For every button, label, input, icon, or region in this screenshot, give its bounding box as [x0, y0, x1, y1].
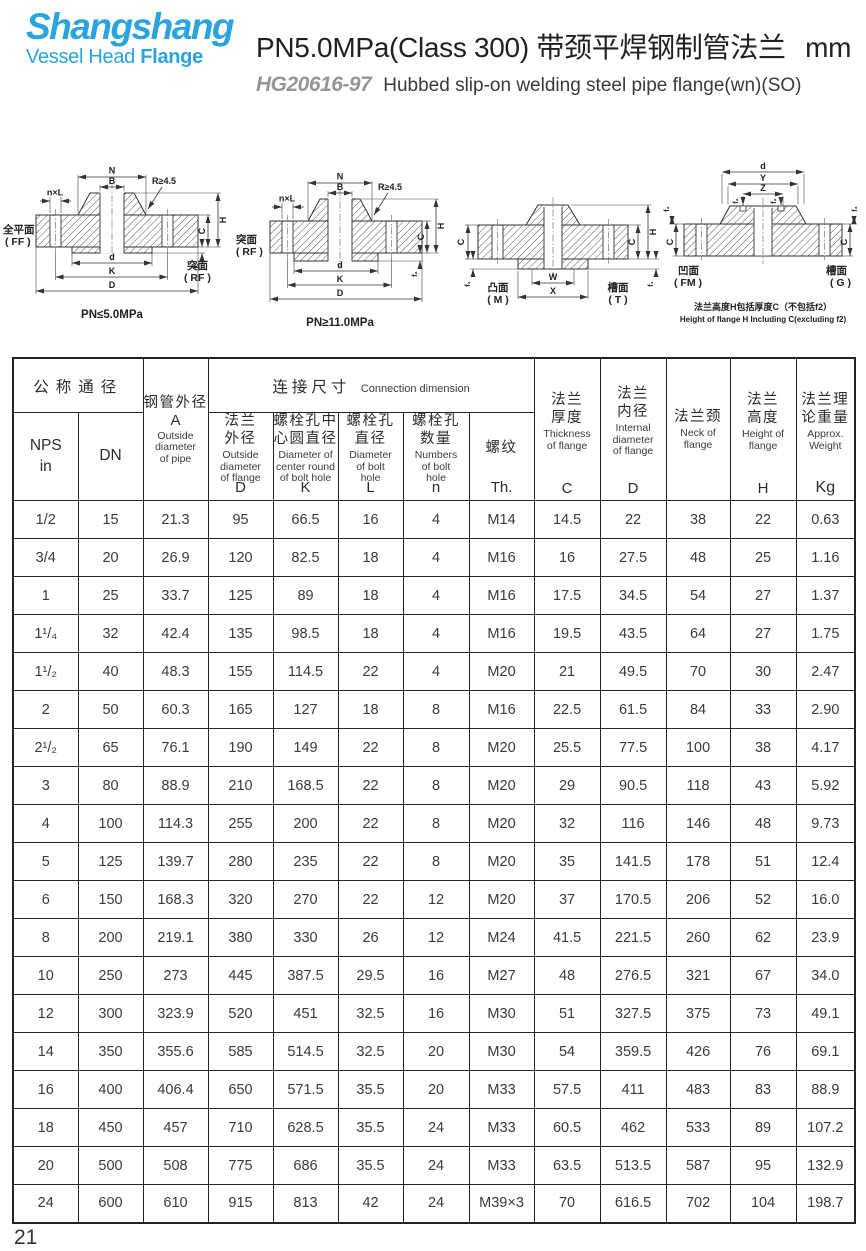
dim-label-h: H: [648, 229, 658, 236]
table-cell: 14.5: [534, 501, 600, 539]
table-cell: 30: [730, 653, 796, 691]
dim-label-r: R≥4.5: [152, 176, 176, 186]
table-cell: 29.5: [338, 957, 403, 995]
table-cell: 24: [403, 1185, 469, 1223]
table-cell: 20: [403, 1033, 469, 1071]
table-cell: 22: [730, 501, 796, 539]
table-cell: 1/2: [13, 501, 78, 539]
table-cell: 585: [208, 1033, 273, 1071]
table-cell: 29: [534, 767, 600, 805]
col-group-connection: 连接尺寸 Connection dimension: [208, 358, 534, 413]
table-cell: M27: [469, 957, 534, 995]
table-cell: 300: [78, 995, 143, 1033]
table-cell: 8: [403, 843, 469, 881]
table-cell: 76: [730, 1033, 796, 1071]
page-number: 21: [14, 1226, 37, 1250]
table-cell: M20: [469, 843, 534, 881]
connection-group-zh: 连接尺寸: [272, 379, 350, 396]
table-cell: 150: [78, 881, 143, 919]
dim-label-c: C: [416, 233, 426, 240]
table-cell: 49.1: [796, 995, 855, 1033]
table-row: 12533.712589184M1617.534.554271.37: [13, 577, 855, 615]
table-cell: 650: [208, 1071, 273, 1109]
table-cell: 132.9: [796, 1147, 855, 1185]
table-cell: M20: [469, 767, 534, 805]
table-cell: 483: [666, 1071, 730, 1109]
table-row: 2¹/₂6576.1190149228M2025.577.5100384.17: [13, 729, 855, 767]
dim-label-w: W: [549, 272, 558, 282]
table-cell: 48: [534, 957, 600, 995]
title-unit: mm: [805, 32, 851, 63]
table-cell: 350: [78, 1033, 143, 1071]
table-cell: 83: [730, 1071, 796, 1109]
table-cell: M33: [469, 1147, 534, 1185]
drawing-flange-fm-g: d Y Z f₂ f₂ f₃ f₃ C C 凹面 ( FM ) 槽面 ( G )…: [664, 152, 862, 332]
face-label-fm-zh: 凹面: [678, 265, 699, 277]
table-cell: 4: [13, 805, 78, 843]
table-cell: 235: [273, 843, 338, 881]
brand-tagline-b: Flange: [140, 46, 203, 68]
table-cell: 100: [666, 729, 730, 767]
table-cell: 616.5: [600, 1185, 666, 1223]
table-cell: 387.5: [273, 957, 338, 995]
drawing-flange-ff-rf: N B n×L R≥4.5 d K D H C f₁ 全平面 ( FF ) 突面…: [2, 147, 236, 333]
table-row: 1¹/₂4048.3155114.5224M202149.570302.47: [13, 653, 855, 691]
table-cell: 67: [730, 957, 796, 995]
table-cell: 219.1: [143, 919, 208, 957]
table-cell: M30: [469, 1033, 534, 1071]
table-cell: 1¹/₂: [13, 653, 78, 691]
table-cell: M20: [469, 881, 534, 919]
col-header-neck: 法兰颈 Neck of flange: [666, 358, 730, 501]
table-cell: 120: [208, 539, 273, 577]
table-cell: 114.3: [143, 805, 208, 843]
dim-label-z: Z: [760, 183, 766, 193]
table-cell: 43.5: [600, 615, 666, 653]
table-cell: 12: [403, 881, 469, 919]
table-cell: 50: [78, 691, 143, 729]
table-cell: 5: [13, 843, 78, 881]
dim-label-nxl: n×L: [279, 194, 296, 204]
col-header-weight: 法兰理 论重量 Approx. Weight Kg: [796, 358, 855, 501]
table-cell: 210: [208, 767, 273, 805]
table-cell: 95: [730, 1147, 796, 1185]
table-cell: 15: [78, 501, 143, 539]
table-cell: 22: [338, 653, 403, 691]
table-cell: 14: [13, 1033, 78, 1071]
dim-label-f2-left: f₂: [465, 281, 472, 286]
table-cell: 19.5: [534, 615, 600, 653]
col-header-flange-od: 法兰 外径 Outside diameter of flange D: [208, 413, 273, 501]
face-label-rf-en: ( RF ): [236, 246, 263, 258]
table-cell: 20: [13, 1147, 78, 1185]
face-label-rf-en: ( RF ): [184, 272, 211, 284]
table-cell: 508: [143, 1147, 208, 1185]
table-cell: 35: [534, 843, 600, 881]
table-cell: 4: [403, 615, 469, 653]
table-cell: M24: [469, 919, 534, 957]
table-cell: 18: [338, 539, 403, 577]
face-label-g-en: ( G ): [830, 277, 851, 289]
table-cell: 4: [403, 501, 469, 539]
table-cell: M20: [469, 805, 534, 843]
table-cell: 38: [666, 501, 730, 539]
table-cell: 8: [13, 919, 78, 957]
face-label-ff-en: ( FF ): [5, 236, 31, 248]
technical-drawings: N B n×L R≥4.5 d K D H C f₁ 全平面 ( FF ) 突面…: [0, 147, 866, 341]
dim-label-b: B: [109, 176, 116, 186]
table-row: 3/42026.912082.5184M161627.548251.16: [13, 539, 855, 577]
table-cell: 400: [78, 1071, 143, 1109]
table-row: 6150168.33202702212M2037170.52065216.0: [13, 881, 855, 919]
table-cell: 8: [403, 767, 469, 805]
table-cell: 49.5: [600, 653, 666, 691]
table-cell: 98.5: [273, 615, 338, 653]
table-row: 12300323.952045132.516M3051327.53757349.…: [13, 995, 855, 1033]
table-cell: 65: [78, 729, 143, 767]
table-cell: 16: [13, 1071, 78, 1109]
table-cell: 16: [403, 957, 469, 995]
table-cell: 520: [208, 995, 273, 1033]
dim-label-f3-left: f₃: [664, 206, 671, 212]
table-cell: 170.5: [600, 881, 666, 919]
table-cell: 32: [534, 805, 600, 843]
col-header-dn: DN: [78, 413, 143, 501]
dim-label-c: C: [197, 227, 207, 234]
title-block: PN5.0MPa(Class 300) 带颈平焊钢制管法兰 mm HG20616…: [256, 8, 851, 97]
table-cell: 0.63: [796, 501, 855, 539]
table-cell: 33.7: [143, 577, 208, 615]
table-cell: 155: [208, 653, 273, 691]
table-cell: 426: [666, 1033, 730, 1071]
table-cell: 18: [338, 691, 403, 729]
dim-label-d: d: [109, 252, 115, 262]
dim-label-h: H: [218, 217, 228, 224]
table-cell: M20: [469, 729, 534, 767]
table-cell: 64: [666, 615, 730, 653]
table-cell: 149: [273, 729, 338, 767]
table-cell: 16: [338, 501, 403, 539]
table-cell: 141.5: [600, 843, 666, 881]
col-header-thread: 螺纹 Th.: [469, 413, 534, 501]
table-cell: 813: [273, 1185, 338, 1223]
table-cell: 84: [666, 691, 730, 729]
table-cell: M16: [469, 691, 534, 729]
table-cell: 38: [730, 729, 796, 767]
table-cell: 32.5: [338, 995, 403, 1033]
table-row: 18450457710628.535.524M3360.546253389107…: [13, 1109, 855, 1147]
face-label-ff-zh: 全平面: [2, 223, 35, 236]
table-cell: 2: [13, 691, 78, 729]
table-cell: 168.3: [143, 881, 208, 919]
table-cell: 127: [273, 691, 338, 729]
table-cell: 200: [78, 919, 143, 957]
table-cell: 116: [600, 805, 666, 843]
table-body: 1/21521.39566.5164M1414.52238220.633/420…: [13, 501, 855, 1223]
table-cell: 25.5: [534, 729, 600, 767]
table-cell: 22: [338, 881, 403, 919]
table-cell: 450: [78, 1109, 143, 1147]
table-cell: 4: [403, 577, 469, 615]
table-cell: 1¹/₄: [13, 615, 78, 653]
table-cell: 41.5: [534, 919, 600, 957]
table-cell: 80: [78, 767, 143, 805]
table-cell: 500: [78, 1147, 143, 1185]
dim-label-f2-right: f₂: [771, 198, 778, 203]
table-cell: M39×3: [469, 1185, 534, 1223]
page-subtitle: HG20616-97 Hubbed slip-on welding steel …: [256, 73, 851, 97]
table-cell: 2¹/₂: [13, 729, 78, 767]
table-cell: 198.7: [796, 1185, 855, 1223]
dim-label-r: R≥4.5: [378, 182, 402, 192]
table-cell: M20: [469, 653, 534, 691]
table-cell: 10: [13, 957, 78, 995]
table-cell: 118: [666, 767, 730, 805]
table-cell: 190: [208, 729, 273, 767]
table-cell: 330: [273, 919, 338, 957]
table-cell: 135: [208, 615, 273, 653]
table-cell: 125: [78, 843, 143, 881]
table-cell: M33: [469, 1071, 534, 1109]
table-cell: 51: [730, 843, 796, 881]
table-cell: 4.17: [796, 729, 855, 767]
table-cell: 35.5: [338, 1147, 403, 1185]
dim-label-c-right: C: [839, 238, 849, 245]
face-label-rf-zh: 突面: [187, 259, 208, 272]
table-cell: 24: [403, 1147, 469, 1185]
table-cell: 457: [143, 1109, 208, 1147]
face-label-g-zh: 槽面: [826, 264, 847, 277]
nominal-group-label: 公称通径: [14, 375, 143, 397]
table-cell: 320: [208, 881, 273, 919]
table-header: 公称通径 钢管外径 A Outside diameter of pipe 连接尺…: [13, 358, 855, 501]
table-cell: M30: [469, 995, 534, 1033]
table-cell: 48: [666, 539, 730, 577]
dim-label-big-d: D: [337, 288, 344, 298]
dim-label-c-left: C: [665, 238, 675, 245]
table-cell: 107.2: [796, 1109, 855, 1147]
drawing-flange-rf-high-pn: N B n×L R≥4.5 d K D H C f₂ 突面 ( RF ) PN≥…: [236, 155, 442, 341]
dim-label-f3-right: f₃: [852, 206, 859, 212]
table-cell: 513.5: [600, 1147, 666, 1185]
table-cell: 628.5: [273, 1109, 338, 1147]
table-cell: 125: [208, 577, 273, 615]
table-cell: 514.5: [273, 1033, 338, 1071]
col-header-bolt-hole-diameter: 螺栓孔 直径 Diameter of bolt hole L: [338, 413, 403, 501]
table-cell: 2.47: [796, 653, 855, 691]
table-row: 5125139.7280235228M2035141.51785112.4: [13, 843, 855, 881]
brand-tagline: Vessel Head Flange: [26, 46, 226, 69]
table-cell: 250: [78, 957, 143, 995]
col-group-nominal: 公称通径: [13, 358, 143, 413]
table-cell: 35.5: [338, 1071, 403, 1109]
table-cell: 18: [338, 615, 403, 653]
drawing2-caption: PN≥11.0MPa: [306, 317, 374, 329]
table-cell: 260: [666, 919, 730, 957]
table-cell: 12.4: [796, 843, 855, 881]
table-cell: 27: [730, 577, 796, 615]
table-cell: 52: [730, 881, 796, 919]
table-cell: 16: [403, 995, 469, 1033]
table-cell: 48: [730, 805, 796, 843]
table-cell: 18: [13, 1109, 78, 1147]
title-chinese: 带颈平焊钢制管法兰: [536, 32, 785, 63]
table-cell: 4: [403, 653, 469, 691]
table-cell: 27.5: [600, 539, 666, 577]
table-cell: 3/4: [13, 539, 78, 577]
table-cell: 6: [13, 881, 78, 919]
table-cell: 24: [13, 1185, 78, 1223]
table-cell: 26.9: [143, 539, 208, 577]
col-header-thickness: 法兰 厚度 Thickness of flange C: [534, 358, 600, 501]
table-cell: 775: [208, 1147, 273, 1185]
table-cell: 60.5: [534, 1109, 600, 1147]
table-cell: 60.3: [143, 691, 208, 729]
table-cell: M16: [469, 615, 534, 653]
table-cell: 178: [666, 843, 730, 881]
face-label-rf-zh: 突面: [236, 233, 257, 246]
table-cell: 270: [273, 881, 338, 919]
dim-label-f2-left: f₂: [733, 198, 740, 203]
table-row: 25060.3165127188M1622.561.584332.90: [13, 691, 855, 729]
table-cell: 359.5: [600, 1033, 666, 1071]
table-cell: 146: [666, 805, 730, 843]
dim-label-k: K: [337, 274, 344, 284]
dim-label-nxl: n×L: [47, 188, 64, 198]
table-cell: 20: [78, 539, 143, 577]
dim-label-y: Y: [760, 173, 766, 183]
dim-label-d: d: [760, 161, 766, 171]
dim-label-n: N: [109, 166, 116, 176]
table-cell: 22: [338, 805, 403, 843]
table-cell: 35.5: [338, 1109, 403, 1147]
table-cell: 255: [208, 805, 273, 843]
table-cell: 168.5: [273, 767, 338, 805]
table-row: 8200219.13803302612M2441.5221.52606223.9: [13, 919, 855, 957]
table-cell: 89: [273, 577, 338, 615]
table-cell: 22: [338, 729, 403, 767]
table-cell: 61.5: [600, 691, 666, 729]
table-cell: 206: [666, 881, 730, 919]
table-cell: 18: [338, 577, 403, 615]
table-cell: 5.92: [796, 767, 855, 805]
table-cell: 710: [208, 1109, 273, 1147]
dim-label-x: X: [550, 286, 556, 296]
table-cell: 88.9: [143, 767, 208, 805]
table-cell: 48.3: [143, 653, 208, 691]
table-cell: 22: [338, 767, 403, 805]
page-header: Shangshang Vessel Head Flange PN5.0MPa(C…: [0, 0, 866, 97]
table-cell: 32.5: [338, 1033, 403, 1071]
table-cell: 200: [273, 805, 338, 843]
drawing1-caption: PN≤5.0MPa: [81, 309, 144, 321]
table-cell: 221.5: [600, 919, 666, 957]
dim-label-b: B: [337, 182, 344, 192]
table-cell: 37: [534, 881, 600, 919]
table-cell: 25: [730, 539, 796, 577]
table-cell: 276.5: [600, 957, 666, 995]
table-cell: 77.5: [600, 729, 666, 767]
table-row: 246006109158134224M39×370616.5702104198.…: [13, 1185, 855, 1223]
table-cell: 54: [534, 1033, 600, 1071]
table-cell: 70: [534, 1185, 600, 1223]
table-row: 10250273445387.529.516M2748276.53216734.…: [13, 957, 855, 995]
table-cell: 51: [534, 995, 600, 1033]
table-cell: 73: [730, 995, 796, 1033]
table-cell: 69.1: [796, 1033, 855, 1071]
table-cell: 34.0: [796, 957, 855, 995]
table-cell: 95: [208, 501, 273, 539]
table-cell: 8: [403, 691, 469, 729]
col-header-bolt-circle: 螺栓孔中 心圆直径 Diameter of center round of bo…: [273, 413, 338, 501]
table-cell: 1.75: [796, 615, 855, 653]
table-cell: 88.9: [796, 1071, 855, 1109]
table-cell: 22.5: [534, 691, 600, 729]
table-cell: 22: [600, 501, 666, 539]
col-header-internal-diameter: 法兰 内径 Internal diameter of flange D: [600, 358, 666, 501]
flange-section: [684, 198, 842, 264]
table-cell: 375: [666, 995, 730, 1033]
table-cell: 445: [208, 957, 273, 995]
table-cell: 100: [78, 805, 143, 843]
table-cell: 273: [143, 957, 208, 995]
drawing-flange-m-t: C f₂ W X C H f₂ 凸面 ( M ) 槽面 ( T ): [442, 171, 664, 341]
col-header-height: 法兰 高度 Height of flange H: [730, 358, 796, 501]
table-cell: 915: [208, 1185, 273, 1223]
table-cell: 165: [208, 691, 273, 729]
table-cell: 54: [666, 577, 730, 615]
table-row: 38088.9210168.5228M202990.5118435.92: [13, 767, 855, 805]
table-cell: 139.7: [143, 843, 208, 881]
table-row: 1¹/₄3242.413598.5184M1619.543.564271.75: [13, 615, 855, 653]
spec-table-wrap: 公称通径 钢管外径 A Outside diameter of pipe 连接尺…: [12, 357, 854, 1224]
table-cell: 12: [13, 995, 78, 1033]
table-cell: 380: [208, 919, 273, 957]
table-cell: 610: [143, 1185, 208, 1223]
dim-label-f2-right: f₂: [648, 281, 655, 286]
height-note-en: Height of flange H Including C(excluding…: [680, 315, 847, 324]
dim-label-n: N: [337, 172, 344, 182]
table-cell: M14: [469, 501, 534, 539]
standard-number: HG20616-97: [256, 73, 371, 97]
table-cell: 533: [666, 1109, 730, 1147]
table-cell: M16: [469, 539, 534, 577]
table-cell: 66.5: [273, 501, 338, 539]
page-title: PN5.0MPa(Class 300) 带颈平焊钢制管法兰 mm: [256, 26, 851, 66]
brand-tagline-a: Vessel Head: [26, 46, 140, 68]
table-cell: 12: [403, 919, 469, 957]
table-cell: 327.5: [600, 995, 666, 1033]
table-cell: 70: [666, 653, 730, 691]
face-label-t-zh: 槽面: [608, 281, 629, 294]
table-cell: 323.9: [143, 995, 208, 1033]
table-cell: 33: [730, 691, 796, 729]
table-cell: 62: [730, 919, 796, 957]
table-cell: 23.9: [796, 919, 855, 957]
brand-name: Shangshang: [26, 8, 226, 45]
table-cell: 8: [403, 729, 469, 767]
table-cell: 21.3: [143, 501, 208, 539]
height-note-zh: 法兰高度H包括厚度C（不包括f2）: [694, 301, 832, 312]
table-cell: 3: [13, 767, 78, 805]
table-row: 4100114.3255200228M2032116146489.73: [13, 805, 855, 843]
table-cell: 1: [13, 577, 78, 615]
dim-label-c-right: C: [627, 238, 637, 245]
table-cell: 406.4: [143, 1071, 208, 1109]
table-cell: 34.5: [600, 577, 666, 615]
face-label-fm-en: ( FM ): [674, 277, 702, 289]
table-cell: 355.6: [143, 1033, 208, 1071]
